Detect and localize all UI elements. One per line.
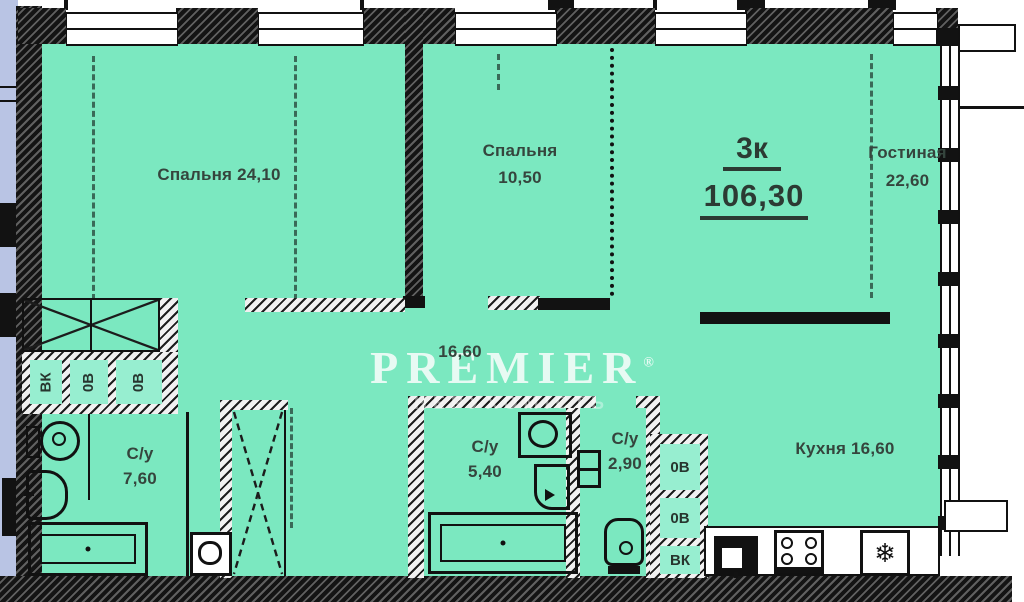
room-label-kitchen: Кухня 16,60 [770, 438, 920, 459]
room-label-bath2-area: 5,40 [452, 461, 518, 482]
stove-burner [805, 537, 817, 549]
floor-plan: ВК 0В 0В [0, 0, 1024, 602]
toilet-bowl-dot [52, 432, 66, 446]
stove-panel [777, 567, 821, 573]
fridge-icon: ❄ [860, 530, 910, 576]
toilet-bowl-dot [619, 541, 633, 555]
room-label-bath1-name: С/у [110, 443, 170, 464]
window [893, 12, 938, 46]
shower-door-icon [534, 464, 570, 510]
wall-bedroom2-south [488, 296, 540, 310]
wall-right-pier [938, 210, 958, 224]
wall-top-segment [18, 8, 66, 44]
wall-cap [403, 296, 425, 308]
shaft-vk: ВК [660, 546, 700, 574]
wall-bath2-west [408, 396, 424, 578]
stove-burner [781, 553, 793, 565]
room-label-bedroom1: Спальня 24,10 [124, 164, 314, 185]
wall-right-pier [938, 455, 958, 469]
wall-right-pier [936, 28, 958, 46]
stove-burner [781, 537, 793, 549]
shaft-label: 0В [670, 510, 689, 527]
bathtub-inner [440, 524, 566, 562]
wall-living-kitchen [700, 312, 890, 324]
outside-mark [0, 293, 16, 337]
shaft-ov: 0В [70, 360, 108, 404]
round-sink-bowl [528, 420, 558, 448]
outside-box [958, 24, 1016, 52]
beam-dashed-line [92, 56, 95, 300]
window [455, 12, 557, 46]
room-label-living-area: 22,60 [850, 170, 965, 191]
shaft-label: 0В [131, 372, 148, 391]
washing-machine-icon [190, 532, 232, 576]
plan-title-type: 3к [723, 132, 781, 171]
shaft-label: 0В [81, 372, 98, 391]
room-label-bath3-name: С/у [600, 428, 650, 449]
shaft-ov: 0В [660, 444, 700, 490]
room-label-bedroom2-name: Спальня [465, 140, 575, 161]
wall-bottom [0, 576, 1012, 602]
kitchen-sink-icon [714, 536, 758, 574]
wardrobe-wall-top [220, 400, 288, 410]
beam-dashed-line [497, 54, 500, 90]
room-label-bath2-name: С/у [455, 436, 515, 457]
wall-right-pier [938, 394, 958, 408]
shaft-vk: ВК [30, 360, 62, 404]
shaft-label: ВК [38, 372, 55, 392]
room-label-bath1-area: 7,60 [108, 468, 172, 489]
bathtub-drain [501, 541, 506, 546]
toilet-base [608, 566, 640, 574]
bathtub-icon [428, 512, 578, 574]
outside-mark [2, 478, 16, 536]
wall-right-glazing [940, 44, 960, 556]
beam-dashed-line [290, 408, 293, 528]
window [258, 12, 364, 46]
bathtub-icon [28, 522, 148, 576]
washbasin-tap [24, 492, 34, 496]
wall-bedroom2-south-cap [538, 298, 610, 310]
shaft-ov: 0В [660, 498, 700, 538]
wall-right-pier [938, 334, 958, 348]
shaft-ov: 0В [116, 360, 162, 404]
kitchen-sink-basin [722, 548, 742, 568]
wall-top-segment [745, 8, 893, 44]
kitchen-sink-tap [734, 572, 738, 578]
toilet-icon [604, 518, 644, 566]
wall-right-pier [938, 86, 958, 100]
room-label-bath3-area: 2,90 [597, 453, 653, 474]
bath1-partition-line [88, 414, 90, 500]
stove-icon [774, 530, 824, 576]
wardrobe-x-icon [232, 410, 284, 576]
bathtub-drain [86, 547, 91, 552]
outside-line [956, 106, 1024, 109]
room-label-living-name: Гостиная [850, 142, 965, 163]
wardrobe-box [232, 410, 286, 576]
toilet-tank [26, 426, 40, 458]
wall-bath1-east [186, 412, 189, 576]
snowflake-icon: ❄ [874, 540, 896, 566]
door-arrow-icon [545, 489, 555, 501]
wall-bedrooms-divider [405, 8, 423, 304]
shaft-label: ВК [670, 552, 690, 569]
outside-box [944, 500, 1008, 532]
wall-bath2-north [424, 396, 596, 408]
shaft-label: 0В [670, 459, 689, 476]
wall-top-segment [555, 8, 655, 44]
closet-end-wall [160, 298, 178, 354]
room-label-bedroom2-area: 10,50 [465, 167, 575, 188]
bathtub-inner [40, 534, 136, 564]
outside-mark [0, 203, 16, 247]
window [655, 12, 747, 46]
wall-top-segment [176, 8, 258, 44]
stove-burner [805, 553, 817, 565]
partition-planned-dotted [610, 48, 614, 296]
washing-machine-drum [198, 541, 222, 565]
plan-title-area: 106,30 [700, 178, 808, 220]
window [66, 12, 178, 46]
room-label-hall-area: 16,60 [420, 341, 500, 362]
round-sink-icon [518, 412, 572, 458]
wall-right-pier [938, 272, 958, 286]
wall-bedroom1-south [245, 298, 405, 312]
closet-divider [90, 298, 92, 352]
